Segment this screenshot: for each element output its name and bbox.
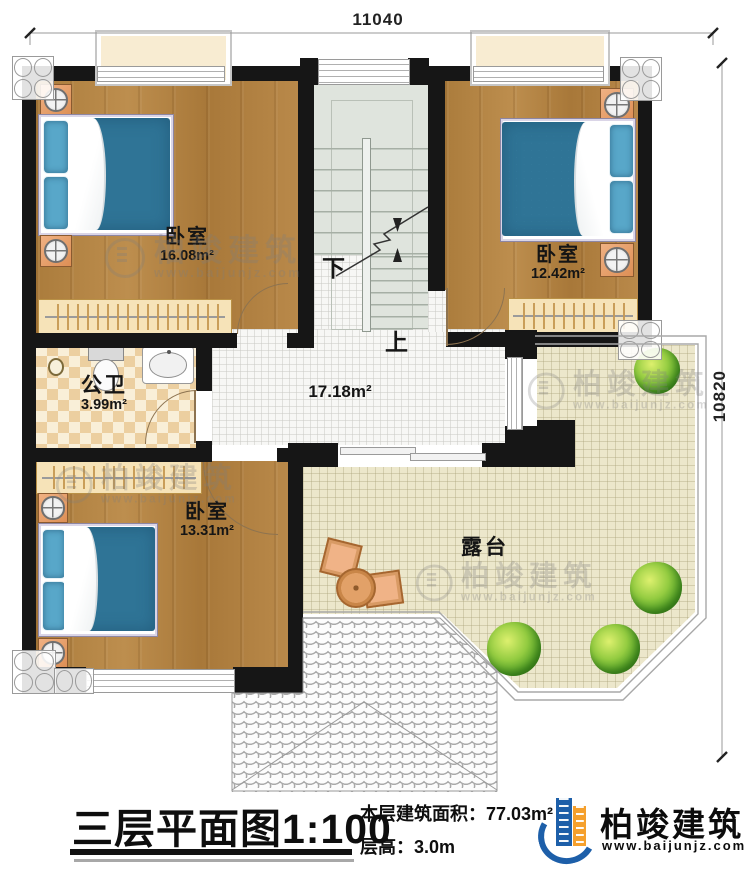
stairs-down-label: 下 bbox=[322, 249, 345, 283]
ac-fan-icon bbox=[35, 652, 55, 672]
floor-plan-canvas: 卧室 16.08m² 卧室 12.42m² 卧室 13.31m² 公卫 3.99… bbox=[0, 0, 750, 873]
ac-fan-icon bbox=[641, 322, 661, 340]
ac-fan-icon bbox=[642, 80, 661, 100]
room-name: 公卫 bbox=[34, 374, 174, 397]
room-name: 卧室 bbox=[137, 501, 277, 523]
nightstand bbox=[38, 493, 68, 523]
wall-segment bbox=[298, 66, 314, 335]
hall-area-label: 17.18m² bbox=[270, 382, 410, 402]
nightstand bbox=[40, 235, 72, 267]
room-area: 12.42m² bbox=[488, 266, 628, 282]
lamp-icon bbox=[44, 239, 68, 263]
pillow bbox=[43, 120, 69, 174]
pillow bbox=[43, 176, 69, 230]
window-sill-top-left bbox=[97, 66, 225, 82]
ac-unit-icon bbox=[12, 650, 56, 694]
ac-fan-icon bbox=[14, 652, 34, 672]
door-leaf bbox=[194, 390, 196, 443]
sliding-door-leaf bbox=[410, 453, 486, 461]
ac-fan-icon bbox=[14, 58, 33, 78]
stairs-up-label: 上 bbox=[385, 323, 408, 357]
dimension-right-value: 10820 bbox=[710, 370, 730, 422]
ac-fan-icon bbox=[622, 80, 641, 100]
pillow bbox=[609, 180, 634, 234]
blanket bbox=[64, 527, 98, 631]
ac-unit-icon bbox=[620, 57, 662, 101]
wall-segment bbox=[287, 333, 314, 348]
ac-unit-icon bbox=[54, 668, 94, 694]
wall-segment bbox=[537, 420, 575, 467]
room-label-bedroom-top-right: 卧室 12.42m² bbox=[488, 244, 628, 282]
ac-fan-icon bbox=[56, 670, 74, 693]
floor-height-value: 3.0m bbox=[414, 837, 455, 857]
ac-fan-icon bbox=[34, 58, 53, 78]
logo-building-icon bbox=[573, 806, 586, 846]
floor-area-label: 本层建筑面积： bbox=[360, 804, 486, 824]
dimension-top-value: 11040 bbox=[333, 10, 423, 30]
wall-segment bbox=[505, 330, 537, 359]
pillow bbox=[609, 124, 634, 178]
hall-terrace-window bbox=[507, 357, 523, 430]
ac-fan-icon bbox=[14, 79, 33, 99]
sliding-door-leaf bbox=[340, 447, 416, 455]
logo-url-text: www.baijunjz.com bbox=[602, 838, 746, 853]
wall-segment bbox=[482, 443, 540, 467]
wall-segment bbox=[288, 462, 303, 693]
door-leaf bbox=[446, 288, 448, 346]
room-area: 16.08m² bbox=[117, 248, 257, 264]
pillow bbox=[42, 581, 66, 631]
company-logo: 柏竣建筑 www.baijunjz.com bbox=[538, 790, 743, 866]
bedroom-bottom-window bbox=[86, 669, 235, 693]
ac-unit-icon bbox=[618, 320, 662, 360]
wall-segment bbox=[638, 66, 652, 347]
ac-fan-icon bbox=[34, 79, 53, 99]
plan-title-text: 三层平面图 bbox=[72, 806, 282, 852]
floor-area-line: 本层建筑面积：77.03m² bbox=[360, 800, 553, 826]
hall-floor-patch-door bbox=[428, 290, 446, 332]
logo-building-icon bbox=[556, 798, 572, 846]
ac-fan-icon bbox=[622, 59, 641, 79]
wall-segment bbox=[196, 345, 212, 391]
room-name: 卧室 bbox=[117, 226, 257, 248]
wardrobe-bottom-left bbox=[36, 461, 202, 494]
plan-title: 三层平面图1:100 bbox=[72, 795, 392, 855]
room-label-bedroom-top-left: 卧室 16.08m² bbox=[117, 226, 257, 264]
ac-fan-icon bbox=[14, 673, 34, 693]
terrace-table bbox=[336, 568, 376, 608]
ac-fan-icon bbox=[35, 673, 55, 693]
floor-height-label: 层高： bbox=[360, 837, 414, 857]
room-area: 13.31m² bbox=[137, 523, 277, 539]
stair-center-rail bbox=[362, 138, 371, 332]
floor-height-line: 层高：3.0m bbox=[360, 833, 455, 859]
ac-fan-icon bbox=[641, 341, 661, 359]
ac-unit-icon bbox=[12, 56, 54, 100]
wall-segment bbox=[233, 667, 303, 693]
room-label-bedroom-bottom-left: 卧室 13.31m² bbox=[137, 501, 277, 539]
terrace-label: 露台 bbox=[430, 531, 540, 561]
title-underline bbox=[70, 849, 352, 855]
stair-window bbox=[318, 59, 410, 85]
wardrobe-top-left bbox=[38, 299, 232, 335]
ac-fan-icon bbox=[75, 670, 93, 693]
room-name: 卧室 bbox=[488, 244, 628, 266]
wall-segment bbox=[22, 448, 203, 462]
title-underline-shadow bbox=[74, 859, 354, 862]
ac-fan-icon bbox=[620, 322, 640, 340]
pillow bbox=[42, 529, 66, 579]
wall-segment bbox=[408, 58, 429, 85]
blanket bbox=[68, 118, 106, 230]
room-area: 3.99m² bbox=[34, 397, 174, 413]
wall-segment bbox=[428, 66, 445, 291]
ac-fan-icon bbox=[642, 59, 661, 79]
wall-segment bbox=[288, 443, 338, 467]
stair-treads-upper bbox=[314, 148, 428, 256]
stair-treads-lower bbox=[363, 256, 428, 329]
blanket bbox=[574, 122, 608, 236]
lamp-icon bbox=[41, 496, 64, 519]
window-sill-top-right bbox=[473, 66, 604, 82]
ac-fan-icon bbox=[620, 341, 640, 359]
room-label-bathroom: 公卫 3.99m² bbox=[34, 374, 174, 413]
